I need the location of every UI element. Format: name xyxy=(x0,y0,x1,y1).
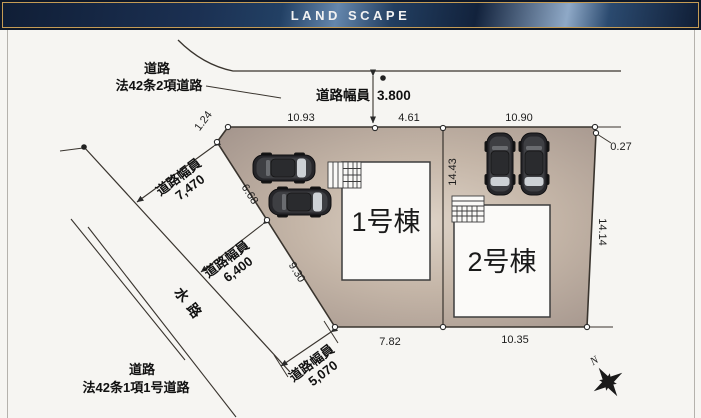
car-top-view-1 xyxy=(253,153,315,184)
road-width-north-label: 道路幅員 xyxy=(316,87,370,103)
title-bar: LAND SCAPE xyxy=(0,0,701,30)
north-road-label-line1: 道路 xyxy=(144,61,171,76)
north-road-edge-line xyxy=(178,40,621,71)
southwest-road-label-line1: 道路 xyxy=(129,362,156,377)
page-title: LAND SCAPE xyxy=(291,8,411,23)
road-width-7470-label: 道路幅員 7,470 xyxy=(153,155,213,210)
building-2-label: 2号棟 xyxy=(467,247,536,277)
waterway-label: 水路 xyxy=(171,284,208,325)
dim-bottom-782: 7.82 xyxy=(379,336,400,348)
southwest-road-label-line2: 法42条1項1号道路 xyxy=(83,380,191,395)
site-plan-drawing: 1号棟 2号棟 xyxy=(0,0,701,418)
survey-monument-icon xyxy=(380,75,386,81)
entrance-steps-1 xyxy=(328,162,361,188)
dim-right-1414: 14.14 xyxy=(596,218,608,246)
dim-top-right: 10.90 xyxy=(505,112,533,124)
dim-corner-027: 0.27 xyxy=(610,141,631,153)
compass-icon: N xyxy=(577,347,632,406)
leader-line-027 xyxy=(597,134,611,143)
entrance-steps-2 xyxy=(452,196,484,222)
car-top-view-4 xyxy=(519,133,550,195)
land-scape-plan-page: 1号棟 2号棟 xyxy=(0,0,701,418)
survey-monument-icon xyxy=(81,144,87,150)
road-width-north-value: 3.800 xyxy=(377,88,411,103)
waterway-line-1 xyxy=(71,219,185,360)
building-1-label: 1号棟 xyxy=(351,207,420,237)
dim-divider-1443: 14.43 xyxy=(447,158,459,186)
title-bar-frame: LAND SCAPE xyxy=(2,2,699,28)
dim-top-mid: 4.61 xyxy=(398,112,419,124)
car-top-view-3 xyxy=(485,133,516,195)
survey-tick-line xyxy=(60,148,83,151)
dim-bottom-1035: 10.35 xyxy=(501,334,529,346)
north-road-leader-line xyxy=(206,86,281,98)
car-top-view-2 xyxy=(269,187,331,218)
compass-north-label: N xyxy=(587,354,601,369)
dim-top-left: 10.93 xyxy=(287,112,315,124)
dim-corner-124: 1.24 xyxy=(192,109,214,133)
road-width-5070-label: 道路幅員 5,070 xyxy=(286,341,346,396)
north-road-label-line2: 法42条2項道路 xyxy=(116,78,204,93)
